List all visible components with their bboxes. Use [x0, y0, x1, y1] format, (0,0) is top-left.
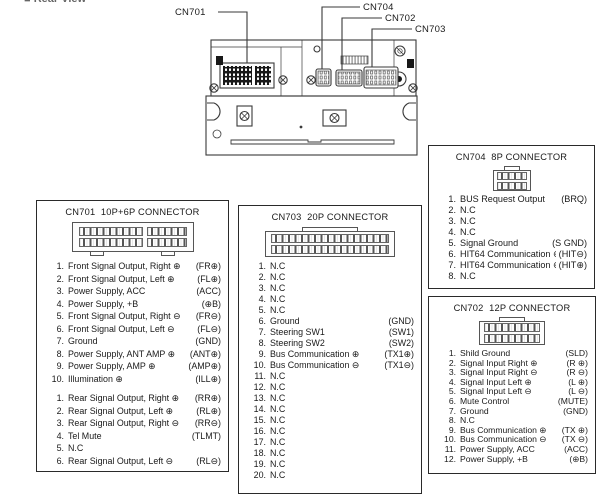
pin-number: 6.: [248, 316, 266, 327]
pin-label: N.C: [270, 393, 285, 404]
pin-row: 4. Signal Input Left ⊕ (L ⊕): [438, 378, 588, 388]
pin-number: 18.: [248, 448, 266, 459]
pin-code: (HIT⊕): [556, 260, 587, 271]
cn704-pin-list: 1. BUS Request Output (BRQ) 2. N.C 3. N.…: [429, 194, 594, 282]
pin-label: N.C: [270, 470, 285, 481]
pin-row: 12. N.C: [248, 382, 414, 393]
pin-label: Shild Ground: [460, 349, 510, 359]
pin-number: 9.: [248, 349, 266, 360]
pin-row: 2. N.C: [248, 272, 414, 283]
pin-code: (SW2): [386, 338, 414, 349]
callout-label-cn702: CN702: [385, 13, 416, 24]
barcode-label: [341, 56, 368, 64]
pin-label: Tel Mute: [68, 430, 102, 443]
pin-row: 19. N.C: [248, 459, 414, 470]
pin-number: 9.: [46, 360, 64, 373]
pin-number: 7.: [438, 260, 456, 271]
bottom-slot: [231, 140, 394, 144]
pin-code: (FR⊕): [193, 260, 221, 273]
connector-box-cn703: CN703 20P CONNECTOR 1. N.C 2. N.C: [238, 205, 422, 494]
pin-code: (ANT⊕): [187, 348, 221, 361]
pin-code: (GND): [385, 316, 414, 327]
pin-label: Bus Communication ⊕: [270, 349, 359, 360]
pin-label: N.C: [460, 416, 475, 426]
chassis-tab-left: [207, 103, 220, 120]
pin-number: 2.: [438, 205, 456, 216]
callout-line-cn703: [372, 29, 412, 70]
pin-label: Signal Ground: [460, 238, 518, 249]
screw-icon: [279, 76, 287, 84]
pin-number: 1.: [46, 392, 64, 405]
pin-label: Steering SW1: [270, 327, 325, 338]
pin-row: 4. Tel Mute (TLMT): [46, 430, 221, 443]
pin-row: 14. N.C: [248, 404, 414, 415]
pin-number: 5.: [46, 442, 64, 455]
pin-label: Front Signal Output, Right ⊕: [68, 260, 181, 273]
pin-number: 19.: [248, 459, 266, 470]
pin-row: 7. Steering SW1 (SW1): [248, 327, 414, 338]
pin-label: Ground: [460, 407, 489, 417]
pin-number: 5.: [46, 310, 64, 323]
pin-number: 10.: [248, 360, 266, 371]
pin-code: (FL⊕): [194, 273, 221, 286]
pin-row: 3. Power Supply, ACC (ACC): [46, 285, 221, 298]
connector-box-cn702: CN702 12P CONNECTOR 1. Shild Ground (SLD…: [428, 296, 596, 474]
pin-label: HIT64 Communication ⊕: [460, 260, 556, 271]
pin-row: 12. Power Supply, +B (⊕B): [438, 455, 588, 465]
pin-number: 17.: [248, 437, 266, 448]
pin-label: Rear Signal Output, Left ⊕: [68, 405, 173, 418]
pin-code: (HIT⊖): [556, 249, 587, 260]
pin-row: 3. N.C: [438, 216, 587, 227]
pin-row: 8. Steering SW2 (SW2): [248, 338, 414, 349]
pin-number: 3.: [248, 283, 266, 294]
pin-label: Signal Input Left ⊖: [460, 387, 532, 397]
pin-number: 15.: [248, 415, 266, 426]
pin-label: N.C: [460, 227, 476, 238]
pin-number: 7.: [46, 335, 64, 348]
pin-label: Illumination ⊕: [68, 373, 123, 386]
pin-row: 7. HIT64 Communication ⊕ (HIT⊕): [438, 260, 587, 271]
box-title-cn701: CN701 10P+6P CONNECTOR: [37, 207, 228, 217]
pin-label: Signal Input Right ⊖: [460, 368, 537, 378]
pin-row: 4. N.C: [438, 227, 587, 238]
cn702-pin-list: 1. Shild Ground (SLD) 2. Signal Input Ri…: [429, 349, 595, 464]
pin-number: 8.: [248, 338, 266, 349]
chassis-tab-right: [403, 103, 416, 120]
pin-row: 16. N.C: [248, 426, 414, 437]
pin-row: 3. N.C: [248, 283, 414, 294]
pin-label: Power Supply, ACC: [68, 285, 145, 298]
pin-number: 12.: [438, 455, 456, 465]
pin-label: N.C: [270, 437, 285, 448]
pin-code: (ILL⊕): [192, 373, 221, 386]
corner-hole: [213, 130, 221, 138]
cn701-connector-icon: [72, 222, 194, 256]
pin-label: Power Supply, ANT AMP ⊕: [68, 348, 175, 361]
pin-row: 15. N.C: [248, 415, 414, 426]
pin-label: Ground: [68, 335, 98, 348]
pin-label: N.C: [270, 404, 285, 415]
pin-row: 1. BUS Request Output (BRQ): [438, 194, 587, 205]
pin-label: Power Supply, ACC: [460, 445, 535, 455]
pin-label: N.C: [270, 426, 285, 437]
pin-row: 3. Signal Input Right ⊖ (R ⊖): [438, 368, 588, 378]
pin-row: 9. Bus Communication ⊕ (TX1⊕): [248, 349, 414, 360]
pin-label: Signal Input Left ⊕: [460, 378, 532, 388]
pin-label: Rear Signal Output, Left ⊖: [68, 455, 173, 468]
pin-number: 6.: [438, 249, 456, 260]
pin-row: 5. N.C: [46, 442, 221, 455]
pin1-marker-right: [407, 59, 414, 68]
pin-code: (RL⊕): [193, 405, 221, 418]
pin-number: 5.: [248, 305, 266, 316]
pin-label: N.C: [270, 459, 285, 470]
pin-row: 6. Front Signal Output, Left ⊖ (FL⊖): [46, 323, 221, 336]
pin-code: (SW1): [386, 327, 414, 338]
pin-row: 1. N.C: [248, 261, 414, 272]
bracket-screw: [323, 110, 346, 126]
cn703-pin-list: 1. N.C 2. N.C 3. N.C 4.: [239, 261, 421, 481]
pin-code: (⊕B): [199, 298, 221, 311]
pin-code: (GND): [560, 407, 588, 417]
pin-label: Signal Input Right ⊕: [460, 359, 537, 369]
pin-row: 8. Power Supply, ANT AMP ⊕ (ANT⊕): [46, 348, 221, 361]
pin-row: 17. N.C: [248, 437, 414, 448]
pin-number: 1.: [438, 194, 456, 205]
pin-label: HIT64 Communication ⊖: [460, 249, 556, 260]
pin-row: 4. N.C: [248, 294, 414, 305]
pin-number: 6.: [46, 323, 64, 336]
pin-label: N.C: [270, 448, 285, 459]
pin-row: 11. N.C: [248, 371, 414, 382]
pin-label: N.C: [270, 371, 285, 382]
pin-label: N.C: [270, 305, 285, 316]
pin-code: (BRQ): [558, 194, 587, 205]
pin-row: 3. Rear Signal Output, Right ⊖ (RR⊖): [46, 417, 221, 430]
pin-number: 2.: [46, 273, 64, 286]
pin-number: 12.: [248, 382, 266, 393]
pin-row: 20. N.C: [248, 470, 414, 481]
pin-label: Power Supply, +B: [68, 298, 138, 311]
pin-label: N.C: [68, 442, 83, 455]
pin-number: 3.: [46, 285, 64, 298]
pin-code: (RR⊕): [192, 392, 221, 405]
pin-row: 5. Front Signal Output, Right ⊖ (FR⊖): [46, 310, 221, 323]
pin-label: N.C: [270, 261, 285, 272]
pin-number: 3.: [438, 216, 456, 227]
pin1-marker-left: [216, 56, 223, 65]
cn701-pin-list-6p: 1. Rear Signal Output, Right ⊕ (RR⊕) 2. …: [37, 392, 228, 467]
hole: [314, 46, 320, 52]
pin-number: 8.: [46, 348, 64, 361]
pin-label: N.C: [460, 205, 476, 216]
pin-row: 10. Bus Communication ⊖ (TX1⊖): [248, 360, 414, 371]
pin-code: (RR⊖): [192, 417, 221, 430]
pin-row: 8. N.C: [438, 271, 587, 282]
pin-row: 1. Rear Signal Output, Right ⊕ (RR⊕): [46, 392, 221, 405]
pin-number: 2.: [46, 405, 64, 418]
pin-row: 10. Illumination ⊕ (ILL⊕): [46, 373, 221, 386]
pin-number: 8.: [438, 271, 456, 282]
pin-label: Steering SW2: [270, 338, 325, 349]
pin-row: 6. Rear Signal Output, Left ⊖ (RL⊖): [46, 455, 221, 468]
pin-label: Bus Communication ⊖: [460, 435, 547, 445]
pin-row: 1. Front Signal Output, Right ⊕ (FR⊕): [46, 260, 221, 273]
pin-label: Mute Control: [460, 397, 509, 407]
pin-row: 11. Power Supply, ACC (ACC): [438, 445, 588, 455]
pin-code: (S GND): [549, 238, 587, 249]
pin-code: (FL⊖): [194, 323, 221, 336]
pin-number: 7.: [248, 327, 266, 338]
pin-code: (FR⊖): [193, 310, 221, 323]
pin-label: BUS Request Output: [460, 194, 545, 205]
pin-number: 2.: [248, 272, 266, 283]
box-title-cn703: CN703 20P CONNECTOR: [239, 212, 421, 222]
screw-icon: [395, 46, 405, 56]
pin-label: Rear Signal Output, Right ⊖: [68, 417, 179, 430]
pin-label: Rear Signal Output, Right ⊕: [68, 392, 179, 405]
pin-number: 4.: [46, 430, 64, 443]
pin-number: 11.: [248, 371, 266, 382]
pin-row: 6. Ground (GND): [248, 316, 414, 327]
pin-number: 10.: [46, 373, 64, 386]
connector-box-cn704: CN704 8P CONNECTOR 1. BUS Request Output…: [428, 145, 595, 289]
pin-number: 1.: [248, 261, 266, 272]
pin-number: 6.: [46, 455, 64, 468]
pin-row: 7. Ground (GND): [438, 407, 588, 417]
pin-label: Power Supply, +B: [460, 455, 528, 465]
pin-code: (TLMT): [189, 430, 221, 443]
alignment-dot: [300, 126, 303, 129]
bracket-screw: [237, 106, 252, 126]
pin-label: N.C: [270, 415, 285, 426]
screw-icon: [307, 76, 315, 84]
pin-label: Front Signal Output, Left ⊖: [68, 323, 175, 336]
pin-label: Front Signal Output, Right ⊖: [68, 310, 181, 323]
pin-number: 3.: [46, 417, 64, 430]
pin-label: Ground: [270, 316, 300, 327]
pin-label: Front Signal Output, Left ⊕: [68, 273, 175, 286]
callout-label-cn704: CN704: [363, 2, 394, 13]
pin-code: (RL⊖): [193, 455, 221, 468]
pin-row: 6. HIT64 Communication ⊖ (HIT⊖): [438, 249, 587, 260]
cn701-pin-list-10p: 1. Front Signal Output, Right ⊕ (FR⊕) 2.…: [37, 260, 228, 385]
pin-row: 2. N.C: [438, 205, 587, 216]
box-title-cn704: CN704 8P CONNECTOR: [429, 152, 594, 162]
pin-row: 18. N.C: [248, 448, 414, 459]
pin-label: N.C: [270, 283, 285, 294]
pin-row: 2. Front Signal Output, Left ⊕ (FL⊕): [46, 273, 221, 286]
wiring-diagram-page: ■ Rear View: [0, 0, 600, 500]
pin-label: N.C: [270, 294, 285, 305]
pin-row: 9. Power Supply, AMP ⊕ (AMP⊕): [46, 360, 221, 373]
pin-number: 4.: [46, 298, 64, 311]
pin-number: 13.: [248, 393, 266, 404]
pin-code: (⊕B): [566, 455, 588, 465]
cn703-connector-icon: [265, 227, 395, 257]
pin-row: 2. Rear Signal Output, Left ⊕ (RL⊕): [46, 405, 221, 418]
pin-number: 20.: [248, 470, 266, 481]
pin-label: N.C: [460, 216, 476, 227]
pin-number: 1.: [46, 260, 64, 273]
pin-label: N.C: [270, 272, 285, 283]
callout-label-cn701: CN701: [175, 7, 206, 18]
cn704-connector-icon: [493, 166, 531, 191]
pin-number: 4.: [248, 294, 266, 305]
box-title-cn702: CN702 12P CONNECTOR: [429, 303, 595, 313]
callout-label-cn703: CN703: [415, 24, 446, 35]
pin-code: (TX1⊖): [381, 360, 414, 371]
pin-label: N.C: [270, 382, 285, 393]
pin-label: Power Supply, AMP ⊕: [68, 360, 156, 373]
cn702-connector-icon: [479, 317, 545, 345]
pin-number: 4.: [438, 227, 456, 238]
pin-label: Bus Communication ⊕: [460, 426, 547, 436]
pin-code: (TX1⊕): [381, 349, 414, 360]
pin-label: Bus Communication ⊖: [270, 360, 359, 371]
pin-row: 4. Power Supply, +B (⊕B): [46, 298, 221, 311]
pin-row: 5. Signal Ground (S GND): [438, 238, 587, 249]
connector-box-cn701: CN701 10P+6P CONNECTOR 1. Front Signal O…: [36, 200, 229, 472]
pin-label: N.C: [460, 271, 476, 282]
pin-code: (ACC): [193, 285, 221, 298]
pin-row: 13. N.C: [248, 393, 414, 404]
pin-number: 16.: [248, 426, 266, 437]
pin-row: 7. Ground (GND): [46, 335, 221, 348]
pin-row: 5. N.C: [248, 305, 414, 316]
pin-code: (AMP⊕): [185, 360, 221, 373]
pin-code: (GND): [192, 335, 221, 348]
pin-number: 5.: [438, 238, 456, 249]
pin-number: 14.: [248, 404, 266, 415]
